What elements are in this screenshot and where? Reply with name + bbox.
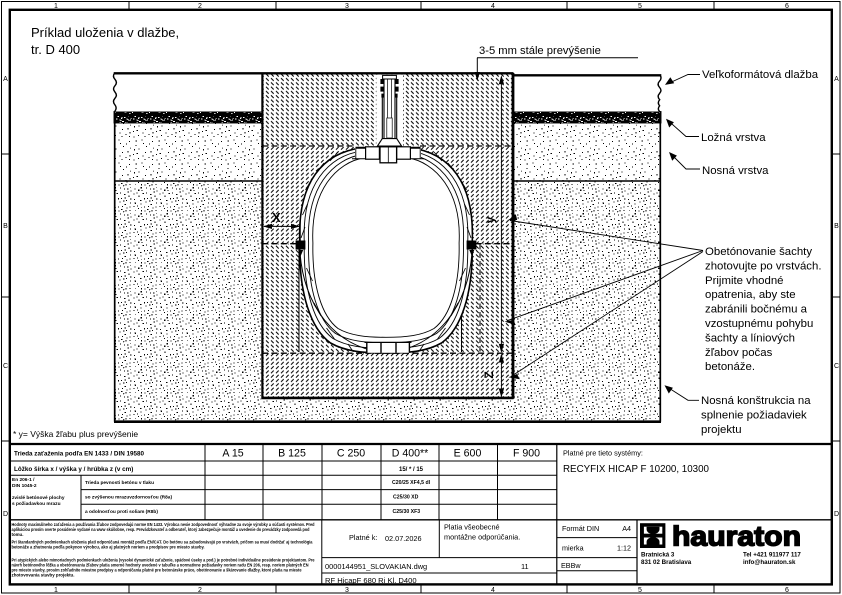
svg-text:vzostupnému pohybu: vzostupnému pohybu	[705, 318, 813, 330]
svg-text:Nosná konštrukcia na: Nosná konštrukcia na	[701, 395, 811, 407]
svg-text:A4: A4	[622, 524, 631, 533]
svg-text:A 15: A 15	[222, 447, 243, 459]
svg-text:X: X	[272, 210, 281, 225]
svg-text:Platné k:: Platné k:	[349, 533, 377, 542]
svg-text:D: D	[834, 511, 839, 518]
svg-text:F 900: F 900	[513, 447, 540, 459]
svg-text:s požiadavkou mrazu: s požiadavkou mrazu	[12, 501, 61, 507]
svg-text:RECYFIX HICAP F 10200, 10300: RECYFIX HICAP F 10200, 10300	[563, 463, 709, 475]
svg-text:splnenie požiadaviek: splnenie požiadaviek	[701, 409, 807, 421]
svg-text:A: A	[834, 76, 839, 83]
svg-text:5: 5	[638, 3, 642, 10]
svg-text:tr. D 400: tr. D 400	[31, 42, 80, 57]
svg-text:Príklad uloženia v dlažbe,: Príklad uloženia v dlažbe,	[31, 25, 179, 40]
svg-text:Tel +421 911977 117: Tel +421 911977 117	[743, 552, 801, 559]
svg-text:E 600: E 600	[454, 447, 482, 459]
svg-text:831 02 Bratislava: 831 02 Bratislava	[641, 559, 692, 566]
svg-text:4: 4	[491, 3, 495, 10]
svg-text:Platné pre tieto systémy:: Platné pre tieto systémy:	[563, 449, 643, 458]
svg-text:B: B	[3, 223, 8, 230]
svg-text:aplikáciou prosím overte posúd: aplikáciou prosím overte posúdenie vydan…	[12, 527, 310, 532]
svg-text:Z: Z	[482, 371, 496, 378]
svg-text:zabránili bočnému a: zabránili bočnému a	[705, 304, 808, 316]
svg-text:DIN 1045-2: DIN 1045-2	[12, 483, 37, 489]
svg-text:zvislé betónové plochy: zvislé betónové plochy	[12, 495, 65, 501]
svg-text:Obetónovanie šachty: Obetónovanie šachty	[705, 246, 812, 258]
svg-text:betonáže a zhutnenia podľa pok: betonáže a zhutnenia podľa pokynov výrob…	[12, 545, 205, 550]
svg-text:montážne odporúčania.: montážne odporúčania.	[444, 533, 520, 542]
svg-text:opatrenia, aby ste: opatrenia, aby ste	[705, 289, 796, 301]
svg-text:En 206-1 /: En 206-1 /	[12, 477, 35, 483]
svg-text:Trieda zaťaženia podľa EN 1433: Trieda zaťaženia podľa EN 1433 / DIN 195…	[14, 451, 145, 458]
svg-text:* y= Výška žľabu plus prevýšen: * y= Výška žľabu plus prevýšenie	[13, 429, 138, 439]
svg-text:3: 3	[345, 3, 349, 10]
svg-text:11: 11	[521, 562, 529, 571]
svg-text:C20/25 XF4,5 dl: C20/25 XF4,5 dl	[392, 480, 431, 486]
svg-text:5: 5	[638, 587, 642, 594]
svg-text:so zvýšenou mrazuvzdornosťou (: so zvýšenou mrazuvzdornosťou (R8a)	[85, 495, 172, 501]
svg-text:Prijmite vhodné: Prijmite vhodné	[705, 275, 784, 287]
svg-text:B 125: B 125	[278, 447, 306, 459]
svg-text:0000144951_SLOVAKIAN.dwg: 0000144951_SLOVAKIAN.dwg	[325, 562, 427, 571]
svg-text:6: 6	[785, 587, 789, 594]
svg-text:B: B	[834, 223, 839, 230]
svg-text:hauraton: hauraton	[672, 520, 801, 551]
svg-text:1: 1	[54, 3, 58, 10]
svg-text:4: 4	[491, 587, 495, 594]
svg-text:C25/30 XF3: C25/30 XF3	[393, 509, 421, 515]
svg-text:D: D	[3, 511, 8, 518]
svg-text:1: 1	[54, 587, 58, 594]
svg-text:projektu: projektu	[701, 424, 742, 436]
svg-text:A: A	[3, 76, 8, 83]
svg-text:02.07.2026: 02.07.2026	[385, 534, 422, 543]
svg-text:Lôžko šírka x / výška y / hrúb: Lôžko šírka x / výška y / hrúbka z (v cm…	[14, 466, 133, 473]
svg-text:šachty a líniových: šachty a líniových	[705, 332, 795, 344]
svg-text:3-5 mm stále prevýšenie: 3-5 mm stále prevýšenie	[479, 45, 601, 57]
svg-text:3: 3	[345, 587, 349, 594]
svg-text:6: 6	[785, 3, 789, 10]
svg-text:info@hauraton.sk: info@hauraton.sk	[743, 559, 796, 566]
svg-text:Platia všeobecné: Platia všeobecné	[444, 523, 500, 532]
svg-text:2: 2	[198, 3, 202, 10]
svg-text:C: C	[3, 363, 8, 370]
svg-text:Trieda pevnosti betónu v tlaku: Trieda pevnosti betónu v tlaku	[85, 480, 154, 486]
svg-text:Ložná vrstva: Ložná vrstva	[701, 132, 766, 144]
svg-text:D 400**: D 400**	[392, 447, 429, 459]
svg-text:C 250: C 250	[337, 447, 365, 459]
svg-text:žľabov počas: žľabov počas	[705, 347, 773, 359]
svg-text:y: y	[483, 216, 497, 223]
svg-text:tomu.: tomu.	[12, 532, 24, 537]
svg-text:Formát DIN: Formát DIN	[562, 524, 599, 533]
svg-text:EBBw: EBBw	[561, 561, 581, 570]
svg-text:zhotovovania stavby projektu.: zhotovovania stavby projektu.	[12, 573, 75, 578]
svg-text:zhotovujte po vrstvách.: zhotovujte po vrstvách.	[705, 260, 822, 272]
svg-text:2: 2	[198, 587, 202, 594]
svg-text:Veľkoformátová dlažba: Veľkoformátová dlažba	[702, 69, 819, 81]
svg-text:Bratnická 3: Bratnická 3	[641, 552, 675, 559]
svg-text:betonáže.: betonáže.	[705, 361, 755, 373]
svg-text:mierka: mierka	[562, 544, 584, 553]
svg-text:C: C	[834, 363, 839, 370]
svg-text:C25/30 XD: C25/30 XD	[393, 495, 419, 501]
svg-text:1:12: 1:12	[617, 544, 631, 553]
svg-text:a odolnosťou proti soliam (R8b: a odolnosťou proti soliam (R8b)	[85, 509, 158, 515]
svg-text:Nosná vrstva: Nosná vrstva	[702, 165, 769, 177]
svg-text:15/ * / 15: 15/ * / 15	[399, 467, 424, 473]
